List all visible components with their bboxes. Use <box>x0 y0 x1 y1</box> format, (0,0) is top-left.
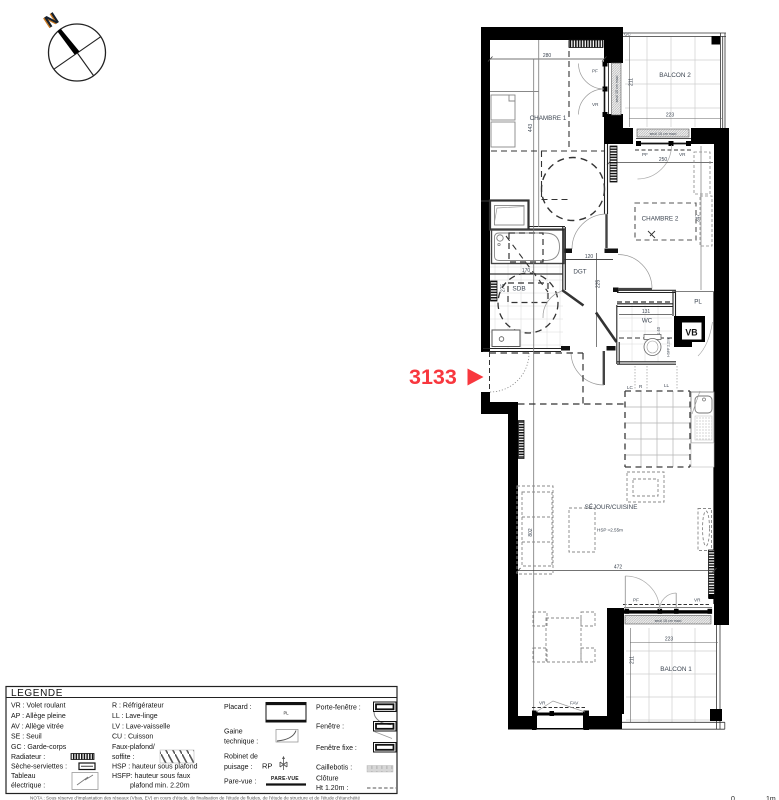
svg-text:R : Réfrigérateur: R : Réfrigérateur <box>112 703 164 710</box>
svg-text:0: 0 <box>731 796 735 800</box>
svg-text:LC: LC <box>627 385 634 390</box>
svg-text:VR: VR <box>694 598 701 603</box>
svg-text:VR : Volet roulant: VR : Volet roulant <box>11 703 66 710</box>
svg-text:1m: 1m <box>766 796 776 800</box>
svg-text:211: 211 <box>629 78 635 86</box>
svg-text:PF: PF <box>592 69 598 74</box>
svg-text:Porte-fenêtre :: Porte-fenêtre : <box>316 705 361 712</box>
svg-text:SÉJOUR/CUISINE: SÉJOUR/CUISINE <box>585 502 638 511</box>
svg-text:LEGENDE: LEGENDE <box>11 688 63 699</box>
svg-text:technique :: technique : <box>224 739 258 746</box>
svg-text:FAV: FAV <box>570 701 579 706</box>
svg-text:AP : Allège pleine: AP : Allège pleine <box>11 713 66 720</box>
svg-text:Faux-plafond/: Faux-plafond/ <box>112 744 155 751</box>
svg-text:Radiateur :: Radiateur : <box>11 754 45 761</box>
svg-text:seuil 15 cm maxi: seuil 15 cm maxi <box>650 132 677 136</box>
svg-text:RP: RP <box>262 762 272 771</box>
svg-text:Sèche-serviettes :: Sèche-serviettes : <box>11 764 67 771</box>
svg-text:GC: GC <box>624 32 632 37</box>
svg-text:Pare-vue :: Pare-vue : <box>224 779 256 786</box>
svg-text:1.40: 1.40 <box>656 326 661 335</box>
svg-text:CU : Cuisson: CU : Cuisson <box>112 734 153 741</box>
svg-text:seuil 15 cm maxi: seuil 15 cm maxi <box>655 619 682 623</box>
svg-text:WC: WC <box>642 318 653 325</box>
svg-text:CHAMBRE 1: CHAMBRE 1 <box>530 115 567 122</box>
svg-text:280: 280 <box>543 53 552 59</box>
svg-text:VB: VB <box>685 328 697 338</box>
svg-text:250: 250 <box>659 157 668 163</box>
svg-text:LL : Lave-linge: LL : Lave-linge <box>112 713 158 720</box>
svg-text:VR: VR <box>539 701 546 706</box>
svg-text:PF: PF <box>633 598 639 603</box>
svg-text:Fenêtre fixe :: Fenêtre fixe : <box>316 745 357 752</box>
svg-text:soffite :: soffite : <box>112 754 134 761</box>
svg-text:seuil 15 cm maxi: seuil 15 cm maxi <box>615 75 619 102</box>
svg-text:NOTA : Sous réserve d'implanta: NOTA : Sous réserve d'implantation des r… <box>30 796 360 800</box>
svg-text:plafond min. 2.20m: plafond min. 2.20m <box>130 783 190 790</box>
svg-text:443: 443 <box>528 124 534 133</box>
svg-text:HSFP: hauteur sous faux: HSFP: hauteur sous faux <box>112 773 191 780</box>
svg-text:BALCON 1: BALCON 1 <box>660 666 692 673</box>
svg-text:AV : Allège vitrée: AV : Allège vitrée <box>11 724 64 731</box>
svg-text:PL: PL <box>283 711 289 716</box>
svg-text:VR: VR <box>679 152 686 157</box>
svg-text:HSP ≈2.55m: HSP ≈2.55m <box>597 528 623 533</box>
svg-text:Robinet de: Robinet de <box>224 754 258 761</box>
svg-text:Gaine: Gaine <box>224 729 243 736</box>
svg-text:Caillebotis :: Caillebotis : <box>316 765 352 772</box>
svg-text:225: 225 <box>596 280 602 289</box>
svg-text:3133: 3133 <box>409 365 457 389</box>
svg-text:Fenêtre :: Fenêtre : <box>316 724 344 731</box>
svg-text:131: 131 <box>642 309 651 315</box>
svg-text:PF: PF <box>642 152 648 157</box>
svg-text:GC : Garde-corps: GC : Garde-corps <box>11 744 67 751</box>
svg-text:SDB: SDB <box>512 286 525 293</box>
svg-text:Tableau: Tableau <box>11 773 36 780</box>
svg-text:Placard :: Placard : <box>224 704 252 711</box>
svg-text:LV : Lave-vaisselle: LV : Lave-vaisselle <box>112 724 170 731</box>
svg-text:VR: VR <box>592 102 599 107</box>
svg-text:puisage :: puisage : <box>224 764 252 771</box>
svg-text:802: 802 <box>528 528 534 537</box>
svg-text:PARE-VUE: PARE-VUE <box>271 776 299 782</box>
svg-text:223: 223 <box>665 637 674 643</box>
svg-text:120: 120 <box>585 254 594 260</box>
svg-text:Clôture: Clôture <box>316 776 339 783</box>
svg-text:SE : Seuil: SE : Seuil <box>11 734 42 741</box>
svg-text:LL: LL <box>664 383 670 388</box>
svg-text:223: 223 <box>666 113 675 119</box>
svg-text:Ht 1.20m :: Ht 1.20m : <box>316 785 348 792</box>
svg-text:DGT: DGT <box>573 269 586 276</box>
svg-text:HSP : hauteur sous plafond: HSP : hauteur sous plafond <box>112 764 198 771</box>
svg-text:PL: PL <box>694 299 702 306</box>
svg-text:CHAMBRE 2: CHAMBRE 2 <box>642 216 679 223</box>
svg-text:électrique :: électrique : <box>11 783 45 790</box>
svg-text:472: 472 <box>614 565 623 571</box>
svg-text:HSFP 2.20m: HSFP 2.20m <box>667 337 671 357</box>
svg-text:211: 211 <box>630 656 636 664</box>
svg-text:BALCON 2: BALCON 2 <box>659 72 691 79</box>
